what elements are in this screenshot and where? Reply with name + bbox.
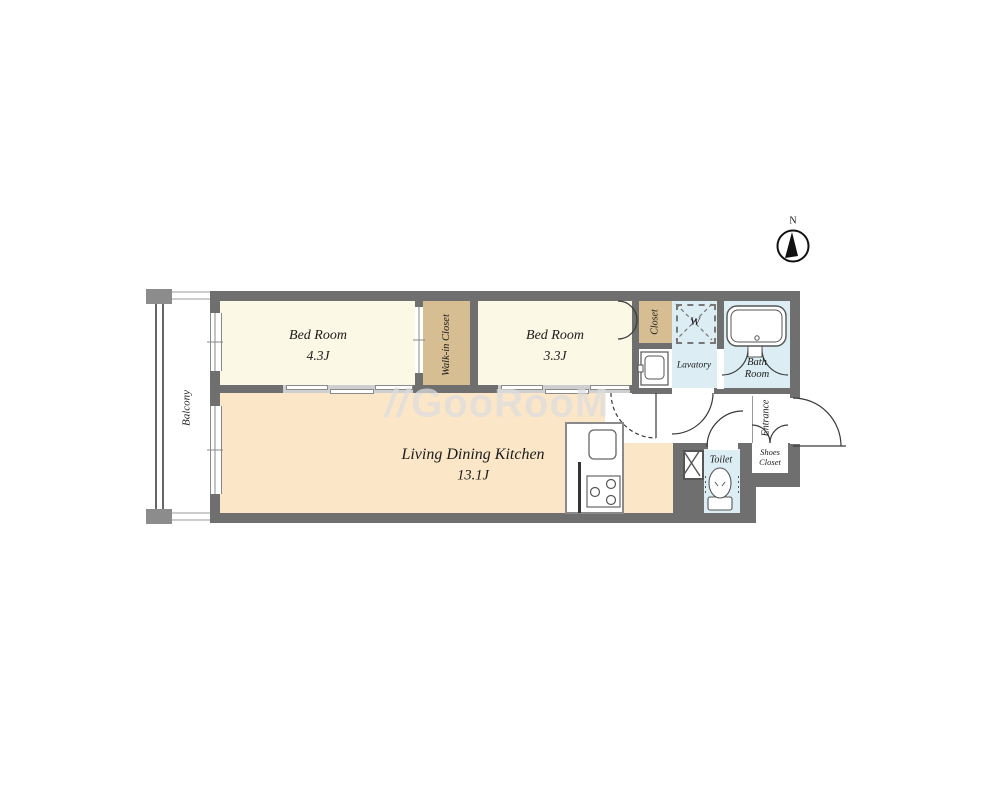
entrance-label: Entrance [760, 400, 772, 437]
compass-icon [778, 231, 809, 262]
wall-top [210, 291, 800, 301]
window-ldk [210, 406, 222, 494]
watermark: //GooRooM [385, 382, 609, 427]
walk-in-closet-label: Walk-in Closet [441, 314, 453, 376]
front-door-opening [790, 398, 800, 444]
bedroom1-label: Bed Room [289, 328, 347, 344]
bedroom2-size: 3.3J [544, 348, 567, 364]
watermark-text: GooRooM [411, 382, 609, 426]
entrance-step-line [752, 396, 753, 443]
balcony-railing [155, 304, 164, 509]
balcony-label: Balcony [181, 390, 194, 426]
bath-door-opening [717, 349, 724, 389]
bathroom-label: Bath Room [738, 357, 776, 381]
toilet-door-opening [708, 443, 738, 450]
toilet-label: Toilet [710, 454, 732, 466]
lavatory-door-opening [672, 388, 714, 394]
sink-nook-floor [639, 349, 672, 388]
ldk-label: Living Dining Kitchen [401, 446, 544, 464]
balcony-rail-block-top [146, 289, 172, 304]
floor-plan: Balcony Bed Room 4.3J Walk-in Closet Bed… [0, 0, 999, 801]
ldk-floor-right [605, 443, 673, 513]
wall-wic-bed2 [470, 301, 478, 390]
bedroom1-size: 4.3J [307, 348, 330, 364]
shoes-closet-label: Shoes Closet [754, 448, 786, 468]
wall-closet-bottom [639, 343, 672, 349]
ldk-size: 13.1J [457, 468, 489, 485]
sliding-panel [330, 389, 374, 394]
balcony-rail-block-bottom [146, 509, 172, 524]
washer-label: W [690, 315, 700, 329]
pipe-shaft [683, 450, 704, 480]
front-door-arc [793, 398, 841, 446]
window-bedroom1 [210, 313, 222, 371]
wall-bed2-right [632, 301, 639, 393]
watermark-icon: // [385, 382, 409, 426]
bedroom2-label: Bed Room [526, 328, 584, 344]
lavatory-label: Lavatory [677, 361, 711, 372]
closet-label: Closet [649, 309, 661, 335]
sliding-panel [286, 385, 328, 390]
compass-n-label: N [789, 215, 796, 227]
wic-door-opening [415, 307, 423, 373]
